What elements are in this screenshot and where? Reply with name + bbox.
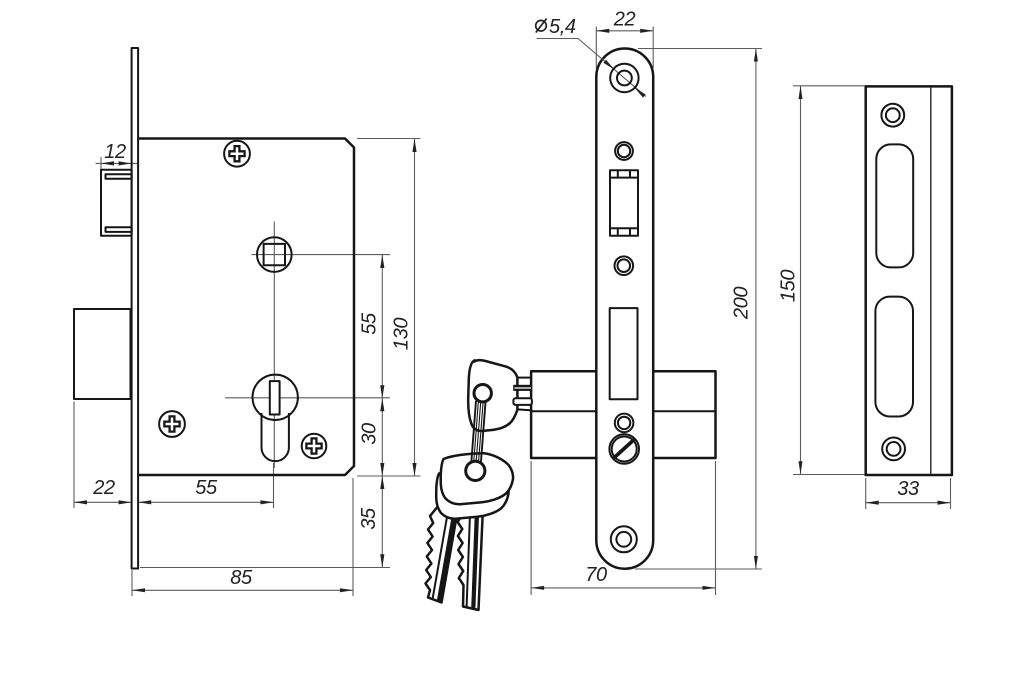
svg-text:150: 150 (778, 270, 800, 302)
svg-text:85: 85 (230, 567, 253, 589)
svg-text:55: 55 (359, 312, 381, 335)
svg-text:5,4: 5,4 (549, 16, 576, 38)
svg-text:12: 12 (104, 141, 126, 163)
svg-text:70: 70 (585, 564, 607, 586)
svg-text:22: 22 (92, 477, 115, 499)
svg-text:35: 35 (358, 507, 380, 530)
svg-text:130: 130 (391, 318, 413, 350)
svg-text:55: 55 (195, 477, 218, 499)
svg-text:22: 22 (613, 9, 636, 31)
svg-text:30: 30 (359, 423, 381, 445)
svg-text:33: 33 (897, 478, 919, 500)
svg-text:200: 200 (731, 287, 753, 320)
